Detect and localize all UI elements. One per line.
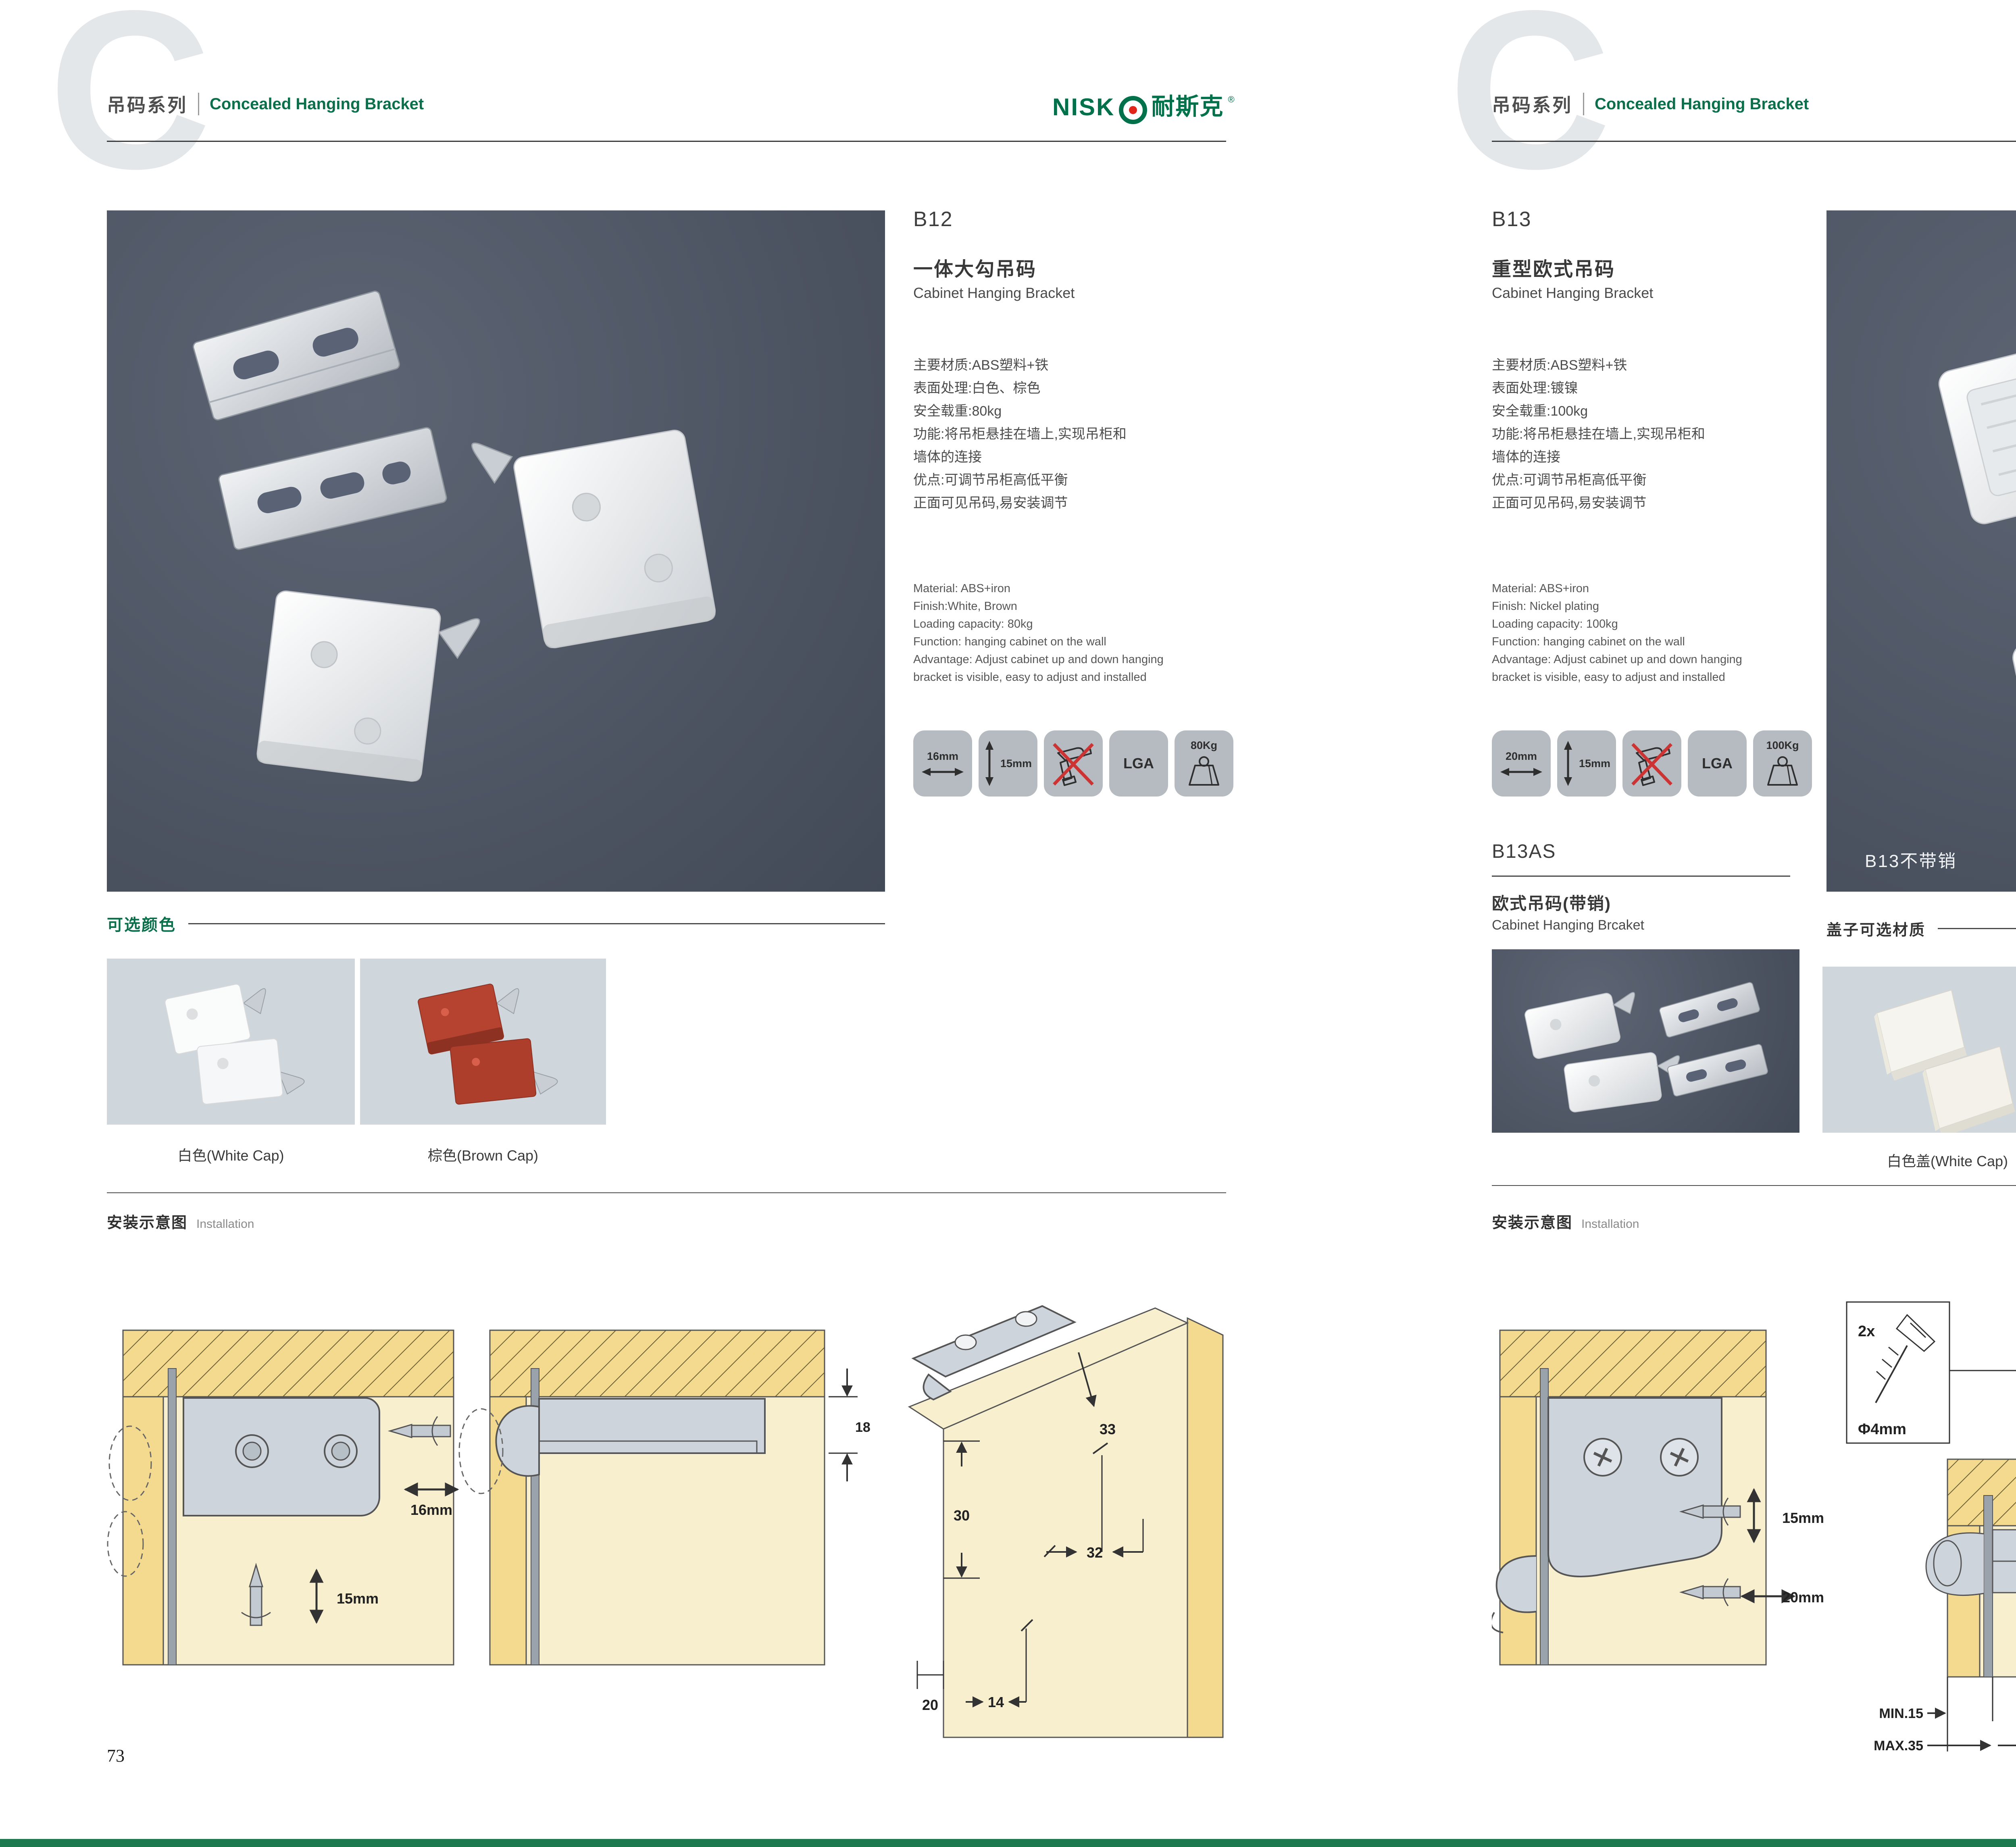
installation-title-cn: 安装示意图: [1492, 1210, 1572, 1232]
spec-line: 正面可见吊码,易安装调节: [1492, 492, 1705, 515]
dim-32: 32: [1087, 1544, 1103, 1561]
product-name-cn: 重型欧式吊码: [1492, 253, 1615, 281]
bracket-assembly: [2010, 584, 2016, 801]
no-drill-icon: [1050, 738, 1097, 788]
sub-product-name-cn: 欧式吊码(带销): [1492, 890, 1611, 915]
spec-line: 优点:可调节吊柜高低平衡: [1492, 469, 1705, 492]
white-bracket-small: [256, 590, 480, 787]
dim-15mm: 15mm: [1782, 1510, 1824, 1526]
spec-line: Advantage: Adjust cabinet up and down ha…: [913, 651, 1164, 668]
photo-caption: B13不带销: [1865, 847, 1957, 872]
page-right: C 吊码系列 Concealed Hanging Bracket NISK 耐斯…: [1352, 0, 2016, 1847]
installation-header: 安装示意图 Installation: [107, 1210, 254, 1232]
brand-logo: NISK 耐斯克 ®: [1052, 95, 1235, 124]
specs-cn: 主要材质:ABS塑料+铁 表面处理:镀镍 安全载重:100kg 功能:将吊柜悬挂…: [1492, 354, 1705, 515]
screw-diameter: Φ4mm: [1858, 1421, 1906, 1438]
phillips-screw: [1661, 1439, 1698, 1476]
diagram-cabinet-section-2: 18: [459, 1330, 871, 1665]
dim-20: 20: [922, 1697, 938, 1713]
product-name-en: Cabinet Hanging Bracket: [913, 285, 1075, 302]
b13-photo-rendering: [1826, 210, 2016, 892]
icon-tile-width: 20mm: [1492, 730, 1551, 797]
icon-tile-cert: LGA: [1109, 730, 1168, 797]
spec-line: Finish:White, Brown: [913, 597, 1164, 615]
product-code: B12: [913, 207, 953, 231]
white-bracket-rendering: [107, 959, 355, 1125]
dim-min: MIN.15: [1879, 1706, 1923, 1721]
installation-header: 安装示意图 Installation: [1492, 1210, 1639, 1232]
series-title-en: Concealed Hanging Bracket: [1595, 95, 1809, 113]
header-rule: [1492, 141, 2016, 142]
white-cap-rendering: [1822, 967, 2016, 1133]
header-divider: [198, 93, 199, 115]
spec-line: 墙体的连接: [913, 446, 1127, 469]
product-photo-b13: B13不带销: [1826, 210, 2016, 892]
weight-icon: [1762, 756, 1803, 788]
header-rule: [107, 141, 1226, 142]
spec-line: Function: hanging cabinet on the wall: [913, 633, 1164, 651]
spec-line: Finish: Nickel plating: [1492, 597, 1742, 615]
dim-16mm: 16mm: [410, 1502, 452, 1518]
swatch-label-brown: 棕色(Brown Cap): [360, 1144, 606, 1165]
load-value: 80Kg: [1191, 739, 1217, 752]
icon-tile-load: 80Kg: [1175, 730, 1233, 797]
screw-qty: 2x: [1858, 1323, 1875, 1340]
bracket-assembly: [1936, 301, 2016, 527]
spec-line: 墙体的连接: [1492, 446, 1705, 469]
brown-bracket-rendering: [360, 959, 606, 1125]
specs-en: Material: ABS+iron Finish: Nickel platin…: [1492, 580, 1742, 686]
b13as-photo-rendering: [1492, 949, 1799, 1133]
spec-line: 功能:将吊柜悬挂在墙上,实现吊柜和: [913, 423, 1127, 446]
dim-30: 30: [954, 1507, 970, 1524]
section-rule: [1938, 928, 2016, 929]
spec-line: bracket is visible, easy to adjust and i…: [1492, 668, 1742, 686]
product-photo-b13as: [1492, 949, 1799, 1133]
installation-diagrams-right: 15mm 20mm 2x: [1492, 1270, 2016, 1766]
cert-label: LGA: [1123, 755, 1154, 772]
icon-tile-no-drill: [1044, 730, 1103, 797]
series-title-cn: 吊码系列: [1492, 91, 1572, 117]
sub-product-rule: [1492, 876, 1790, 877]
swatch-label-white: 白色(White Cap): [107, 1144, 355, 1165]
horizontal-arrow-icon: [1500, 767, 1542, 777]
section-divider: [107, 1192, 1226, 1193]
dim-33: 33: [1100, 1421, 1116, 1437]
logo-latin-text: NISK: [1052, 95, 1115, 119]
series-title-cn: 吊码系列: [107, 91, 187, 117]
spec-line: 主要材质:ABS塑料+铁: [913, 354, 1127, 377]
icon-tile-load: 100Kg: [1753, 730, 1812, 797]
width-value: 20mm: [1506, 750, 1537, 763]
spec-line: Loading capacity: 80kg: [913, 615, 1164, 633]
color-options-section-header: 可选颜色: [107, 912, 885, 935]
installation-diagrams-left: 16mm 15mm: [107, 1270, 1228, 1766]
page-left: C 吊码系列 Concealed Hanging Bracket NISK 耐斯…: [0, 0, 1352, 1847]
color-swatch-brown: [360, 959, 606, 1125]
load-value: 100Kg: [1766, 739, 1799, 752]
b12-photo-rendering: [107, 210, 885, 892]
white-bracket-large: [471, 407, 716, 656]
specs-cn: 主要材质:ABS塑料+铁 表面处理:白色、棕色 安全载重:80kg 功能:将吊柜…: [913, 354, 1127, 515]
section-divider: [1492, 1185, 2016, 1186]
caps-section-header: 盖子可选材质: [1826, 917, 2016, 940]
weight-icon: [1184, 756, 1224, 788]
no-drill-icon: [1629, 738, 1675, 788]
icon-tile-width: 16mm: [913, 730, 972, 797]
product-photo-b12: [107, 210, 885, 892]
product-code: B13: [1492, 207, 1532, 231]
height-value: 15mm: [1000, 757, 1032, 770]
feature-icons: 20mm 15mm: [1492, 730, 1812, 797]
spec-line: Function: hanging cabinet on the wall: [1492, 633, 1742, 651]
sub-product-name-en: Cabinet Hanging Brcaket: [1492, 917, 1644, 933]
spec-line: 优点:可调节吊柜高低平衡: [913, 469, 1127, 492]
feature-icons: 16mm 15mm: [913, 730, 1233, 797]
page-header: 吊码系列 Concealed Hanging Bracket: [107, 91, 424, 117]
icon-tile-height: 15mm: [979, 730, 1037, 797]
vertical-arrow-icon: [1563, 741, 1573, 786]
spec-line: Advantage: Adjust cabinet up and down ha…: [1492, 651, 1742, 668]
height-value: 15mm: [1579, 757, 1610, 770]
dim-max: MAX.35: [1874, 1738, 1923, 1753]
diagram-bracket-screws: 15mm 20mm: [1492, 1330, 1824, 1665]
spec-line: 主要材质:ABS塑料+铁: [1492, 354, 1705, 377]
spec-line: 安全载重:100kg: [1492, 400, 1705, 423]
spec-line: Material: ABS+iron: [913, 580, 1164, 597]
color-options-title: 可选颜色: [107, 912, 176, 935]
diagram-cabinet-section-1: 16mm 15mm: [108, 1330, 458, 1665]
vertical-arrow-icon: [984, 741, 995, 786]
page-header: 吊码系列 Concealed Hanging Bracket: [1492, 91, 1809, 117]
header-divider: [1583, 93, 1584, 115]
spec-line: 表面处理:白色、棕色: [913, 377, 1127, 400]
installation-title-cn: 安装示意图: [107, 1210, 187, 1232]
color-swatch-white: [107, 959, 355, 1125]
diagram-screw-mounting: 2x Φ4mm: [1847, 1302, 2016, 1754]
icon-tile-cert: LGA: [1688, 730, 1747, 797]
series-title-en: Concealed Hanging Bracket: [210, 95, 424, 113]
product-name-en: Cabinet Hanging Bracket: [1492, 285, 1653, 302]
horizontal-arrow-icon: [922, 767, 964, 777]
phillips-screw: [1584, 1439, 1621, 1476]
metal-rail-plate: [218, 427, 448, 551]
caps-title: 盖子可选材质: [1826, 917, 1926, 940]
width-value: 16mm: [927, 750, 958, 763]
spec-line: 正面可见吊码,易安装调节: [913, 492, 1127, 515]
logo-o-icon: [1119, 96, 1147, 124]
dim-14: 14: [988, 1694, 1004, 1710]
sub-product-code: B13AS: [1492, 840, 1556, 863]
spec-line: bracket is visible, easy to adjust and i…: [913, 668, 1164, 686]
page-number: 73: [107, 1745, 125, 1766]
bottom-accent-bar: [0, 1839, 2016, 1847]
logo-registered-mark: ®: [1228, 95, 1234, 104]
installation-title-en: Installation: [1581, 1217, 1639, 1231]
metal-rail-plate: [192, 290, 401, 421]
catalog-spread: C 吊码系列 Concealed Hanging Bracket NISK 耐斯…: [0, 0, 2016, 1847]
installation-title-en: Installation: [196, 1217, 254, 1231]
dim-20mm: 20mm: [1782, 1589, 1824, 1606]
spec-line: 安全载重:80kg: [913, 400, 1127, 423]
cap-label-white: 白色盖(White Cap): [1822, 1150, 2016, 1171]
product-name-cn: 一体大勾吊码: [913, 253, 1037, 281]
icon-tile-no-drill: [1622, 730, 1681, 797]
diagram-cabinet-perspective: 33 30 32 20 14: [909, 1306, 1223, 1737]
dim-18: 18: [855, 1420, 871, 1435]
logo-cjk-text: 耐斯克: [1151, 95, 1224, 119]
specs-en: Material: ABS+iron Finish:White, Brown L…: [913, 580, 1164, 686]
icon-tile-height: 15mm: [1557, 730, 1616, 797]
dim-15mm: 15mm: [337, 1590, 379, 1607]
cert-label: LGA: [1702, 755, 1733, 772]
spec-line: Loading capacity: 100kg: [1492, 615, 1742, 633]
spec-line: 功能:将吊柜悬挂在墙上,实现吊柜和: [1492, 423, 1705, 446]
spec-line: 表面处理:镀镍: [1492, 377, 1705, 400]
spec-line: Material: ABS+iron: [1492, 580, 1742, 597]
section-rule: [188, 923, 885, 924]
cap-swatch-white: [1822, 967, 2016, 1133]
